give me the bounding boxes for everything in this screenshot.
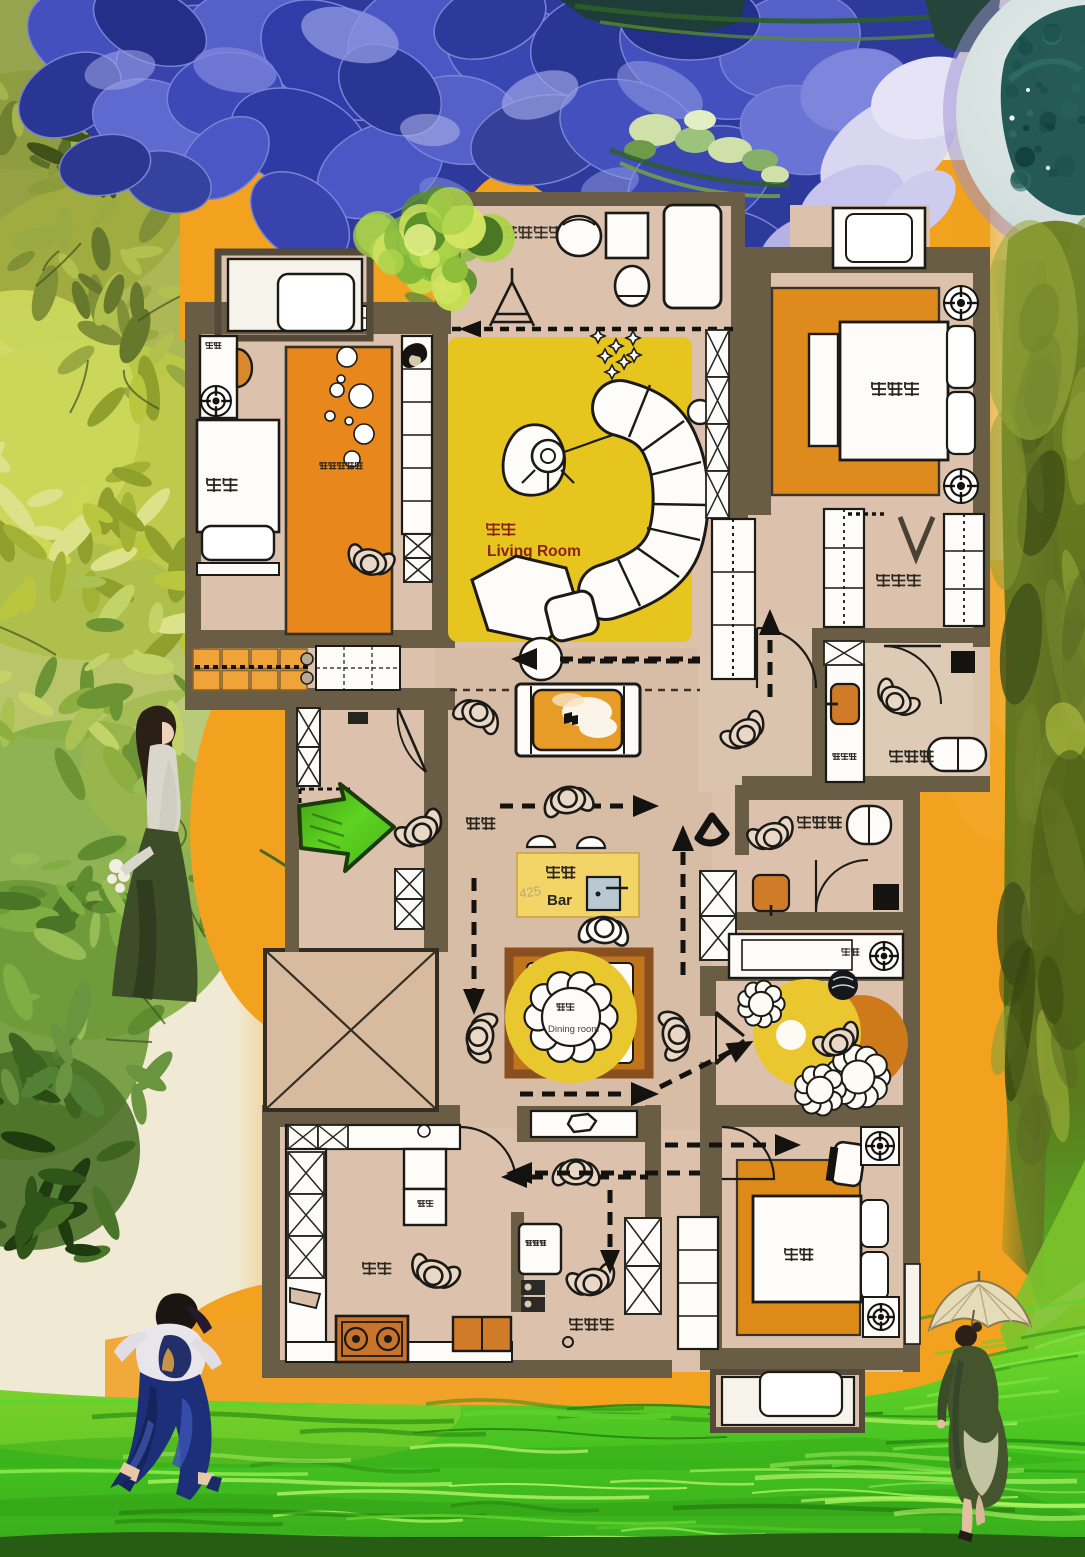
svg-text:Dining room: Dining room: [548, 1024, 599, 1035]
svg-text:425: 425: [518, 883, 542, 901]
svg-text:Living Room: Living Room: [487, 543, 581, 560]
svg-text:Bar: Bar: [547, 892, 572, 909]
